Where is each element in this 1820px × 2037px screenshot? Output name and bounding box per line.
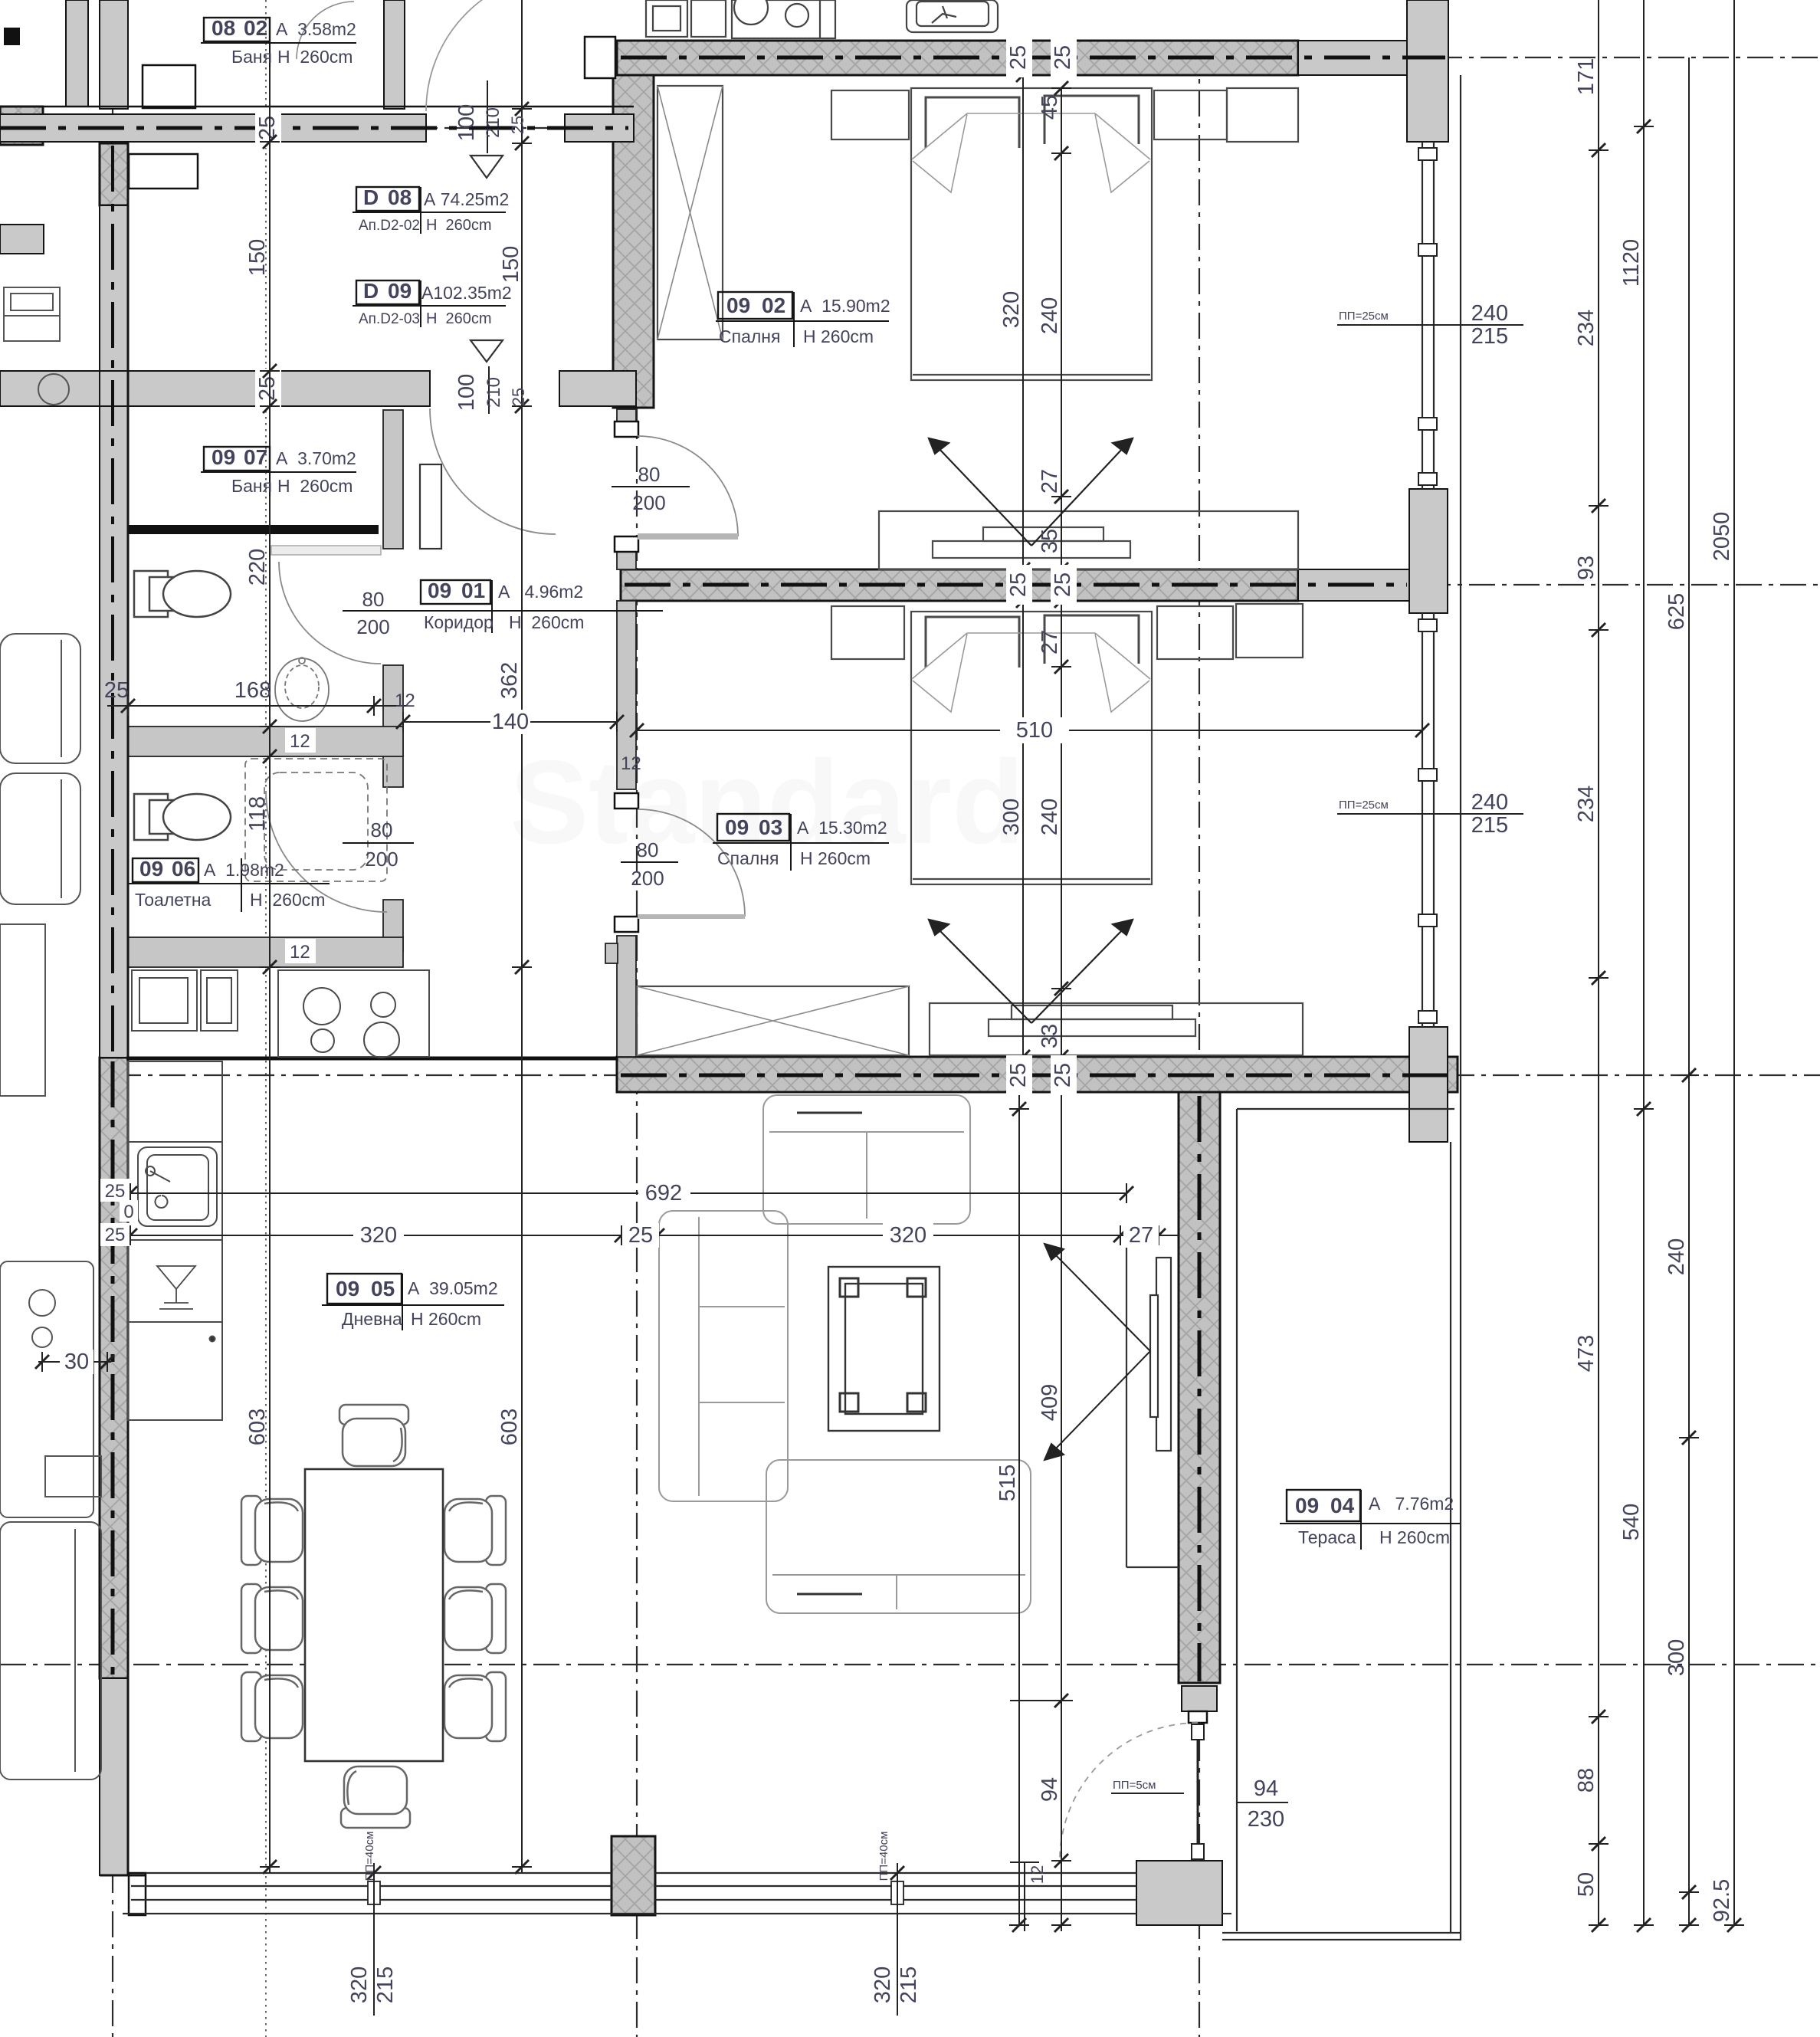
svg-text:Ап.D2-02: Ап.D2-02: [359, 218, 420, 234]
svg-text:04: 04: [1330, 1494, 1355, 1517]
svg-text:215: 215: [897, 1966, 921, 2003]
svg-text:ПП=40см: ПП=40см: [877, 1832, 890, 1881]
svg-text:25: 25: [105, 1181, 126, 1202]
svg-text:200: 200: [365, 848, 398, 871]
svg-text:100: 100: [454, 104, 479, 141]
svg-text:118: 118: [245, 796, 270, 832]
svg-text:09: 09: [388, 279, 412, 303]
svg-text:92.5: 92.5: [1710, 1879, 1734, 1922]
svg-text:300: 300: [1664, 1639, 1689, 1676]
svg-text:12: 12: [395, 690, 415, 711]
svg-text:H 260cm: H 260cm: [411, 1309, 481, 1329]
svg-text:12: 12: [1028, 1865, 1047, 1884]
svg-text:A 39.05m2: A 39.05m2: [408, 1278, 498, 1298]
svg-text:09: 09: [336, 1277, 359, 1301]
svg-text:320: 320: [347, 1966, 372, 2003]
svg-text:02: 02: [244, 16, 267, 40]
svg-text:09: 09: [428, 579, 451, 602]
svg-text:A 1.98m2: A 1.98m2: [204, 860, 284, 880]
svg-text:0: 0: [123, 1202, 133, 1222]
svg-text:H 260cm: H 260cm: [800, 848, 871, 868]
svg-text:100: 100: [454, 374, 479, 411]
svg-text:09: 09: [726, 294, 750, 317]
svg-text:Тоалетна: Тоалетна: [135, 890, 212, 910]
svg-text:ПП=40см: ПП=40см: [363, 1832, 376, 1881]
svg-text:94: 94: [1254, 1776, 1278, 1801]
svg-text:200: 200: [631, 867, 664, 890]
svg-text:168: 168: [234, 678, 271, 703]
svg-text:H 260cm: H 260cm: [509, 612, 584, 632]
svg-text:25: 25: [105, 1225, 126, 1245]
svg-text:H 260cm: H 260cm: [803, 326, 874, 346]
svg-text:25: 25: [628, 1223, 653, 1248]
svg-text:25: 25: [508, 116, 527, 134]
svg-text:A 4.96m2: A 4.96m2: [498, 582, 583, 602]
svg-text:215: 215: [373, 1966, 398, 2003]
svg-text:D: D: [363, 279, 379, 303]
svg-text:27: 27: [1038, 469, 1062, 494]
svg-text:D: D: [363, 185, 379, 209]
svg-text:210: 210: [484, 377, 504, 408]
svg-text:25: 25: [1051, 572, 1075, 597]
svg-text:Дневна: Дневна: [342, 1309, 402, 1329]
svg-text:240: 240: [1471, 790, 1508, 815]
svg-text:Ап.D2-03: Ап.D2-03: [359, 311, 420, 327]
svg-text:12: 12: [621, 753, 641, 774]
svg-text:240: 240: [1664, 1238, 1689, 1275]
svg-text:H 260cm: H 260cm: [277, 47, 353, 67]
svg-text:25: 25: [1006, 45, 1031, 70]
svg-text:A 74.25m2: A 74.25m2: [424, 189, 509, 209]
svg-text:240: 240: [1471, 301, 1508, 326]
svg-text:ПП=5см: ПП=5см: [1113, 1779, 1156, 1792]
svg-text:234: 234: [1574, 310, 1599, 346]
svg-text:01: 01: [461, 579, 485, 602]
svg-text:12: 12: [290, 731, 310, 752]
svg-text:362: 362: [497, 662, 522, 699]
svg-text:80: 80: [637, 838, 659, 861]
svg-text:27: 27: [1038, 630, 1062, 654]
svg-text:603: 603: [497, 1409, 522, 1445]
svg-text:2050: 2050: [1710, 512, 1734, 562]
svg-text:88: 88: [1574, 1768, 1599, 1793]
svg-text:320: 320: [999, 291, 1024, 328]
svg-text:409: 409: [1038, 1384, 1062, 1421]
svg-text:140: 140: [492, 710, 529, 734]
svg-text:230: 230: [1248, 1807, 1284, 1832]
svg-text:A 15.90m2: A 15.90m2: [800, 296, 890, 316]
svg-text:510: 510: [1016, 718, 1053, 743]
svg-text:234: 234: [1574, 786, 1599, 822]
svg-text:320: 320: [360, 1223, 397, 1248]
svg-text:09: 09: [1295, 1494, 1319, 1517]
svg-text:35: 35: [1038, 529, 1062, 553]
svg-text:25: 25: [1051, 1063, 1075, 1087]
svg-text:08: 08: [388, 185, 412, 209]
svg-text:300: 300: [999, 799, 1024, 835]
svg-text:A 3.58m2: A 3.58m2: [276, 19, 356, 39]
svg-text:Коридор: Коридор: [424, 612, 494, 632]
svg-text:Спалня: Спалня: [717, 848, 779, 868]
svg-text:H 260cm: H 260cm: [250, 890, 325, 910]
svg-text:H 260cm: H 260cm: [426, 310, 492, 327]
svg-text:320: 320: [871, 1966, 895, 2003]
svg-text:25: 25: [1006, 1063, 1031, 1087]
svg-text:80: 80: [371, 818, 393, 841]
svg-text:07: 07: [244, 445, 267, 469]
svg-text:12: 12: [290, 942, 310, 963]
svg-text:473: 473: [1574, 1335, 1599, 1372]
svg-text:240: 240: [1038, 799, 1062, 835]
svg-text:A102.35m2: A102.35m2: [421, 283, 512, 303]
svg-text:215: 215: [1471, 813, 1508, 838]
svg-text:150: 150: [245, 239, 270, 276]
svg-text:200: 200: [632, 491, 665, 514]
svg-text:Тераса: Тераса: [1298, 1527, 1356, 1547]
svg-text:03: 03: [759, 815, 782, 839]
svg-text:A 3.70m2: A 3.70m2: [276, 448, 356, 468]
svg-text:25: 25: [1006, 572, 1031, 597]
svg-text:H 260cm: H 260cm: [426, 217, 492, 234]
svg-text:80: 80: [362, 588, 385, 611]
svg-text:150: 150: [499, 246, 523, 283]
svg-text:94: 94: [1038, 1777, 1062, 1802]
svg-text:08: 08: [212, 16, 235, 40]
svg-text:50: 50: [1574, 1872, 1599, 1897]
svg-text:H 260cm: H 260cm: [1379, 1527, 1450, 1547]
svg-text:200: 200: [356, 615, 389, 638]
svg-text:515: 515: [995, 1465, 1020, 1501]
svg-text:Баня: Баня: [231, 47, 272, 67]
svg-text:06: 06: [172, 857, 195, 881]
svg-text:27: 27: [1129, 1223, 1153, 1248]
svg-text:ПП=25см: ПП=25см: [1339, 310, 1389, 323]
svg-text:210: 210: [483, 107, 503, 138]
svg-text:Баня: Баня: [231, 476, 272, 496]
svg-text:625: 625: [1664, 593, 1689, 630]
svg-text:45: 45: [1038, 95, 1062, 120]
svg-text:ПП=25см: ПП=25см: [1339, 799, 1389, 812]
svg-text:09: 09: [212, 445, 235, 469]
svg-text:215: 215: [1471, 324, 1508, 349]
svg-text:1120: 1120: [1619, 239, 1644, 287]
svg-text:692: 692: [645, 1181, 682, 1205]
svg-text:05: 05: [371, 1277, 395, 1301]
svg-text:220: 220: [245, 549, 270, 586]
svg-text:320: 320: [890, 1223, 926, 1248]
svg-text:171: 171: [1574, 58, 1599, 95]
svg-text:30: 30: [64, 1350, 89, 1374]
svg-text:540: 540: [1619, 1504, 1644, 1540]
svg-text:93: 93: [1574, 556, 1599, 580]
svg-text:A 7.76m2: A 7.76m2: [1369, 1494, 1454, 1514]
svg-text:80: 80: [638, 463, 661, 486]
svg-text:25: 25: [255, 376, 280, 401]
svg-text:25: 25: [509, 388, 528, 406]
svg-text:25: 25: [1051, 45, 1075, 70]
svg-text:A 15.30m2: A 15.30m2: [797, 818, 887, 838]
svg-text:09: 09: [139, 857, 163, 881]
svg-text:240: 240: [1038, 297, 1062, 334]
svg-text:25: 25: [104, 678, 129, 703]
svg-text:H 260cm: H 260cm: [277, 476, 353, 496]
svg-text:33: 33: [1038, 1024, 1062, 1048]
svg-text:Спалня: Спалня: [719, 326, 780, 346]
svg-text:02: 02: [762, 294, 785, 317]
svg-text:603: 603: [245, 1409, 270, 1445]
svg-text:09: 09: [725, 815, 749, 839]
